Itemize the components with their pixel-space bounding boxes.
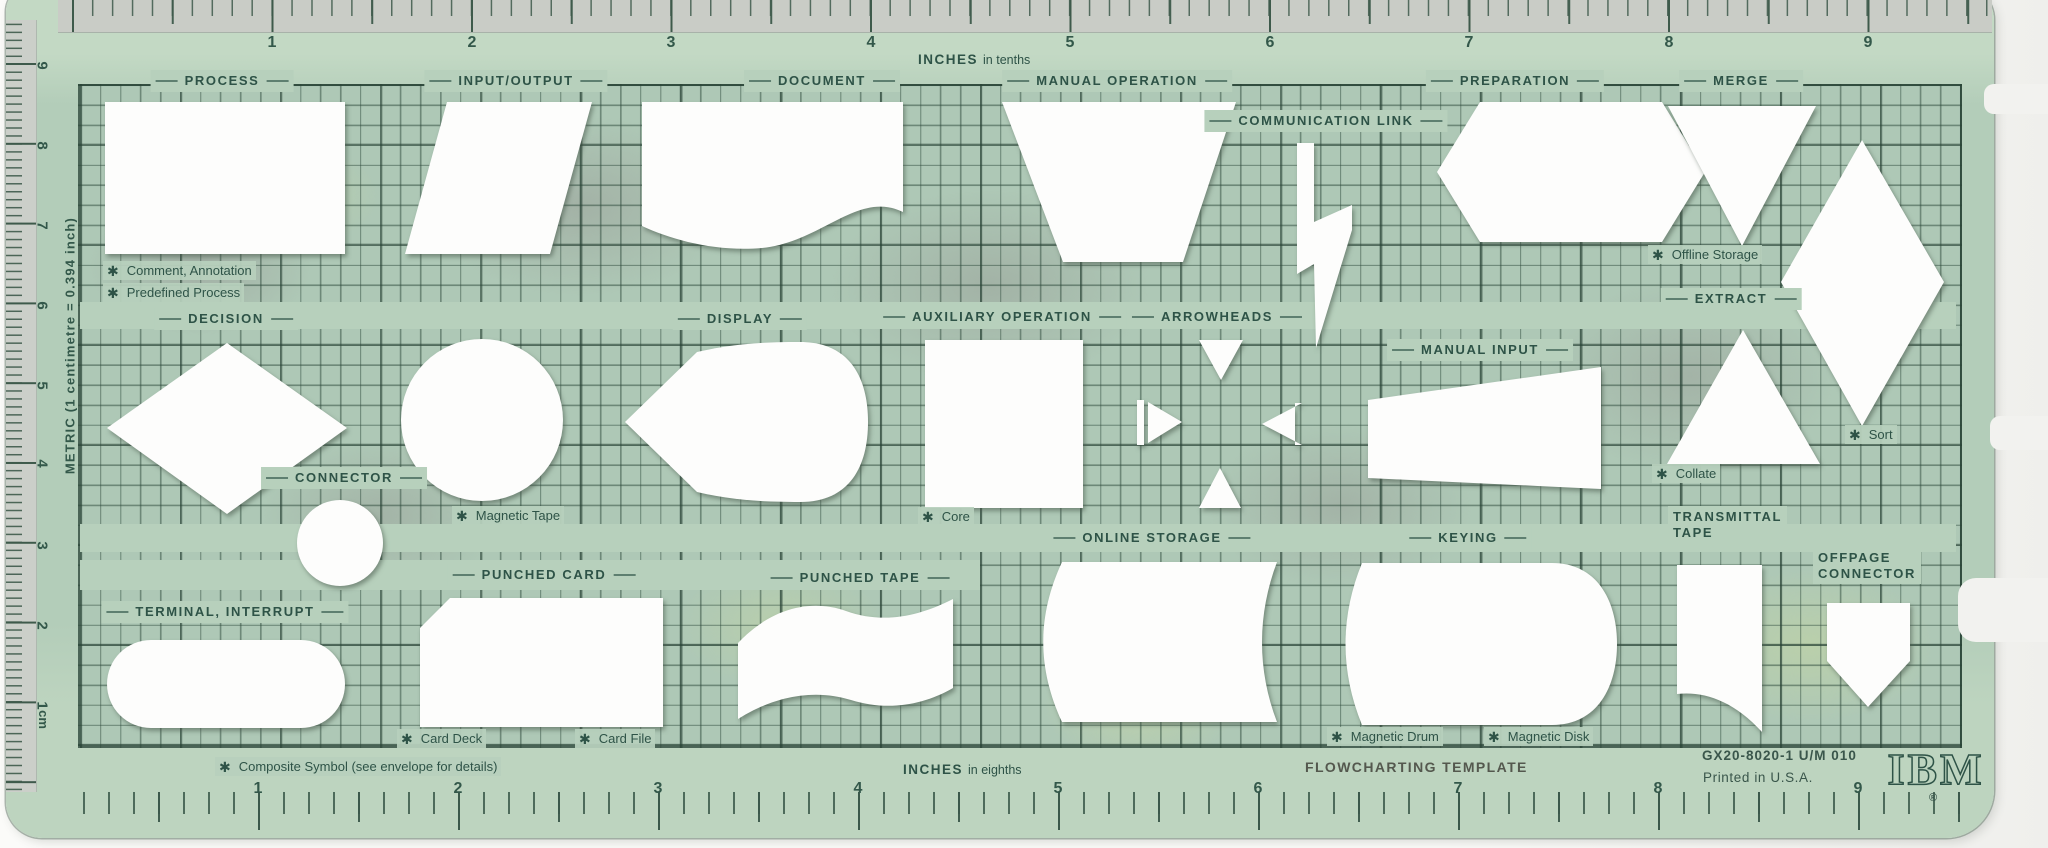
- bottom-ruler-number: 5: [1054, 780, 1063, 798]
- left-ruler-number: 1: [34, 701, 51, 709]
- online-storage-label-text: ONLINE STORAGE: [1082, 530, 1221, 546]
- card-deck-note: ✱Card Deck: [397, 729, 486, 748]
- composite-symbol-note: ✱Composite Symbol (see envelope for deta…: [215, 757, 501, 776]
- left-ruler-number: 4: [34, 459, 51, 467]
- bottom-ruler-number: 8: [1654, 780, 1663, 798]
- left-ruler-number: 6: [34, 301, 51, 309]
- magnetic-disk-text: Magnetic Disk: [1508, 729, 1590, 744]
- card-file-note: ✱Card File: [575, 729, 655, 748]
- star-icon: ✱: [1331, 730, 1343, 744]
- process-label-text: PROCESS: [185, 73, 260, 89]
- predefined-process-text: Predefined Process: [127, 285, 240, 300]
- transmittal-tape-label: TRANSMITTAL TAPE: [1668, 506, 1787, 543]
- auxiliary-operation-label: AUXILIARY OPERATION: [878, 306, 1126, 328]
- star-icon: ✱: [107, 286, 119, 300]
- document-label: DOCUMENT: [744, 70, 900, 92]
- online-storage-label: ONLINE STORAGE: [1048, 527, 1255, 549]
- magnetic-drum-note: ✱Magnetic Drum: [1327, 727, 1443, 746]
- display-label-text: DISPLAY: [707, 311, 773, 327]
- left-ruler-number: 8: [34, 141, 51, 149]
- top-ruler-number: 1: [268, 34, 277, 52]
- keying-label: KEYING: [1404, 527, 1531, 549]
- registered-mark: ®: [1929, 792, 1937, 804]
- extract-label-text: EXTRACT: [1695, 291, 1768, 307]
- punched-tape-label-text: PUNCHED TAPE: [800, 570, 921, 586]
- right-edge-notch: [1984, 84, 2048, 114]
- predefined-process-note: ✱Predefined Process: [103, 283, 244, 302]
- auxiliary-operation-label-text: AUXILIARY OPERATION: [912, 309, 1092, 325]
- left-ruler-number: 7: [34, 221, 51, 229]
- top-ruler-number: 8: [1665, 34, 1674, 52]
- star-icon: ✱: [579, 732, 591, 746]
- ibm-logo-text: IBM: [1888, 745, 1985, 794]
- card-file-text: Card File: [599, 731, 652, 746]
- core-text: Core: [942, 509, 970, 524]
- bottom-ruler-unit-name: INCHES: [903, 762, 963, 777]
- left-ruler-number: 3: [34, 541, 51, 549]
- printed-in-usa: Printed in U.S.A.: [1703, 770, 1813, 785]
- input-output-label: INPUT/OUTPUT: [424, 70, 607, 92]
- keying-label-text: KEYING: [1438, 530, 1497, 546]
- bottom-ruler-number: 2: [454, 780, 463, 798]
- bottom-ruler-number: 6: [1254, 780, 1263, 798]
- bottom-ruler-unit-detail: in eighths: [968, 763, 1022, 777]
- top-ruler-number: 3: [667, 34, 676, 52]
- bottom-inch-tick-ruler: [76, 792, 1960, 832]
- star-icon: ✱: [1849, 428, 1861, 442]
- bottom-ruler-number: 3: [654, 780, 663, 798]
- top-inch-tick-ruler: [58, 0, 1992, 33]
- preparation-label: PREPARATION: [1426, 70, 1604, 92]
- left-ruler-number: 2: [34, 621, 51, 629]
- left-ruler-number: 5: [34, 381, 51, 389]
- connector-label: CONNECTOR: [261, 467, 427, 489]
- transmittal-tape-label-text: TRANSMITTAL TAPE: [1673, 509, 1782, 540]
- tenth-inch-grid: [78, 84, 1962, 748]
- manual-operation-label-text: MANUAL OPERATION: [1036, 73, 1198, 89]
- terminal-interrupt-label-text: TERMINAL, INTERRUPT: [135, 604, 314, 620]
- sort-note: ✱Sort: [1845, 425, 1897, 444]
- punched-card-label-text: PUNCHED CARD: [482, 567, 607, 583]
- punched-tape-label: PUNCHED TAPE: [766, 567, 955, 589]
- communication-link-label: COMMUNICATION LINK: [1204, 110, 1447, 132]
- top-ruler-number: 5: [1066, 34, 1075, 52]
- cm-unit-label: cm: [36, 710, 51, 729]
- document-label-text: DOCUMENT: [778, 73, 866, 89]
- collate-text: Collate: [1676, 466, 1716, 481]
- display-label: DISPLAY: [673, 308, 807, 330]
- merge-label-text: MERGE: [1713, 73, 1769, 89]
- star-icon: ✱: [456, 509, 468, 523]
- magnetic-drum-text: Magnetic Drum: [1351, 729, 1439, 744]
- preparation-label-text: PREPARATION: [1460, 73, 1570, 89]
- right-edge-notch: [1990, 416, 2048, 450]
- sort-text: Sort: [1869, 427, 1893, 442]
- magnetic-disk-note: ✱Magnetic Disk: [1484, 727, 1593, 746]
- star-icon: ✱: [1652, 248, 1664, 262]
- star-icon: ✱: [401, 732, 413, 746]
- flowcharting-template-scan: 1 2 3 4 5 6 7 8 9 INCHES in tenths 1 2 3…: [0, 0, 2048, 848]
- product-title: FLOWCHARTING TEMPLATE: [1305, 759, 1528, 775]
- top-ruler-unit: INCHES in tenths: [918, 52, 1030, 67]
- magnetic-tape-text: Magnetic Tape: [476, 508, 560, 523]
- top-ruler-number: 4: [867, 34, 876, 52]
- bottom-ruler-unit: INCHES in eighths: [903, 762, 1022, 777]
- manual-input-label: MANUAL INPUT: [1387, 339, 1573, 361]
- terminal-interrupt-label: TERMINAL, INTERRUPT: [101, 601, 348, 623]
- star-icon: ✱: [219, 760, 231, 774]
- arrowheads-label: ARROWHEADS: [1127, 306, 1307, 328]
- magnetic-tape-note: ✱Magnetic Tape: [452, 506, 564, 525]
- offpage-connector-label: OFFPAGE CONNECTOR: [1813, 547, 1921, 584]
- offline-storage-note: ✱Offline Storage: [1648, 245, 1762, 264]
- part-number: GX20-8020-1 U/M 010: [1702, 748, 1857, 763]
- comment-annotation-text: Comment, Annotation: [127, 263, 252, 278]
- offpage-connector-label-text: OFFPAGE CONNECTOR: [1818, 550, 1916, 581]
- comment-annotation-note: ✱Comment, Annotation: [103, 261, 256, 280]
- extract-label: EXTRACT: [1661, 288, 1802, 310]
- decision-label-text: DECISION: [188, 311, 264, 327]
- star-icon: ✱: [1656, 467, 1668, 481]
- top-ruler-number: 7: [1465, 34, 1474, 52]
- input-output-label-text: INPUT/OUTPUT: [458, 73, 573, 89]
- core-note: ✱Core: [918, 507, 974, 526]
- left-metric-tick-ruler: [6, 20, 37, 792]
- metric-ruler-caption: METRIC (1 centimetre = 0.394 inch): [63, 116, 78, 576]
- top-ruler-number: 9: [1864, 34, 1873, 52]
- punched-card-label: PUNCHED CARD: [448, 564, 641, 586]
- manual-operation-label: MANUAL OPERATION: [1002, 70, 1232, 92]
- top-ruler-number: 2: [468, 34, 477, 52]
- top-ruler-unit-detail: in tenths: [983, 53, 1030, 67]
- communication-link-label-text: COMMUNICATION LINK: [1238, 113, 1413, 129]
- left-ruler-number: 9: [34, 61, 51, 69]
- top-ruler-unit-name: INCHES: [918, 52, 978, 67]
- offline-storage-text: Offline Storage: [1672, 247, 1758, 262]
- top-ruler-number: 6: [1266, 34, 1275, 52]
- composite-symbol-text: Composite Symbol (see envelope for detai…: [239, 759, 498, 774]
- star-icon: ✱: [107, 264, 119, 278]
- decision-label: DECISION: [154, 308, 298, 330]
- bottom-ruler-number: 4: [854, 780, 863, 798]
- arrowheads-label-text: ARROWHEADS: [1161, 309, 1273, 325]
- connector-label-text: CONNECTOR: [295, 470, 393, 486]
- ibm-logo: IBM: [1876, 742, 1996, 798]
- card-deck-text: Card Deck: [421, 731, 482, 746]
- process-label: PROCESS: [151, 70, 294, 92]
- merge-label: MERGE: [1679, 70, 1803, 92]
- right-edge-notch: [1958, 578, 2048, 642]
- manual-input-label-text: MANUAL INPUT: [1421, 342, 1539, 358]
- bottom-ruler-number: 7: [1454, 780, 1463, 798]
- collate-note: ✱Collate: [1652, 464, 1720, 483]
- star-icon: ✱: [1488, 730, 1500, 744]
- bottom-ruler-number: 9: [1854, 780, 1863, 798]
- bottom-ruler-number: 1: [254, 780, 263, 798]
- star-icon: ✱: [922, 510, 934, 524]
